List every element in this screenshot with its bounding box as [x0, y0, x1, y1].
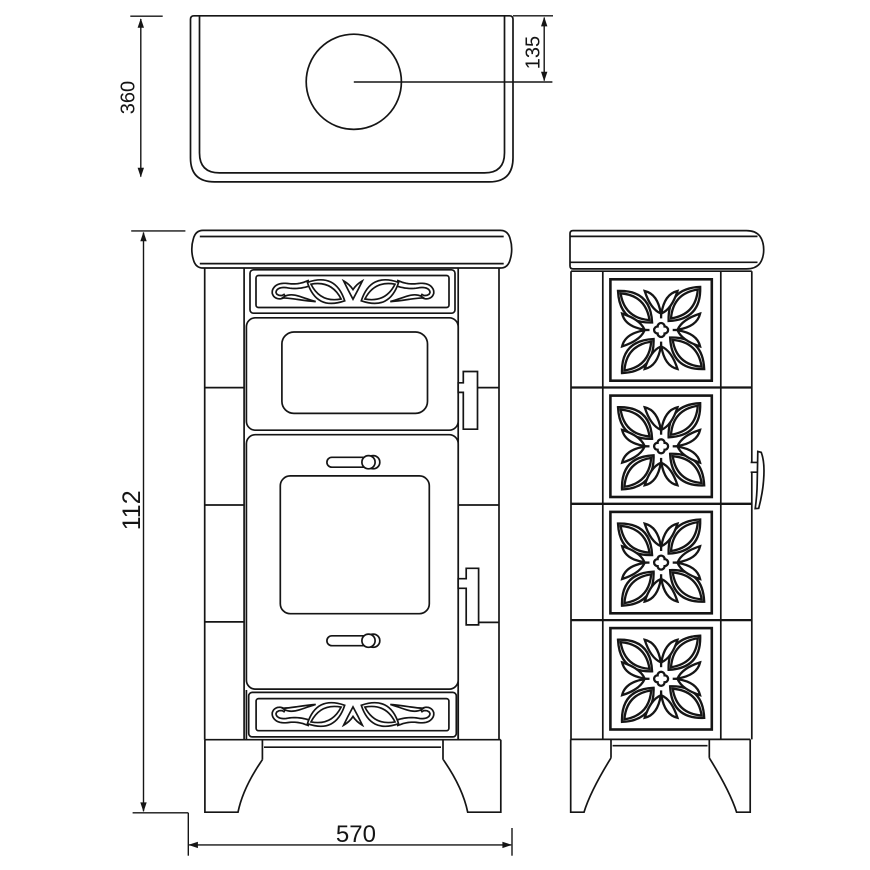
svg-text:112: 112	[118, 490, 146, 530]
svg-text:570: 570	[336, 821, 376, 848]
svg-text:135: 135	[523, 36, 545, 69]
svg-text:360: 360	[118, 81, 140, 114]
